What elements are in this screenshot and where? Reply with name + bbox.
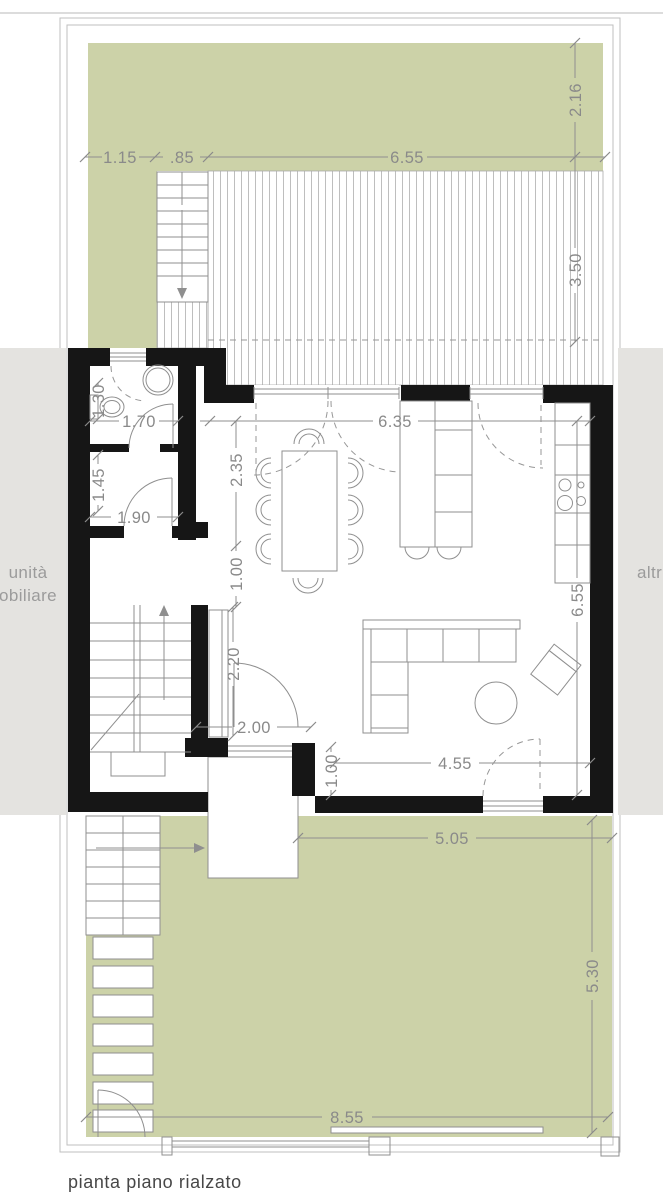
dim-ante-width: 1.90 <box>117 509 151 527</box>
neighbor-label-right: altr <box>637 563 662 582</box>
dim-bath-fixture: 1.30 <box>90 384 108 418</box>
living-window-left <box>254 385 399 403</box>
dim-entry-jamb: 1.00 <box>323 754 341 788</box>
neighbor-label-left-line1: unità <box>9 563 48 582</box>
dim-hall-opening: 1.00 <box>228 557 246 591</box>
dim-garden-top-depth: 2.16 <box>567 83 585 117</box>
rear-door-threshold <box>483 796 543 813</box>
dim-garden-bottom-depth: 5.30 <box>584 959 602 993</box>
entrance-porch <box>208 757 298 878</box>
sliding-gate <box>331 1127 543 1133</box>
kitchen-window <box>470 385 543 403</box>
garden-pavers <box>93 937 153 1132</box>
dim-bath-width: 1.70 <box>122 413 156 431</box>
dim-garden-bottom-front: 5.05 <box>435 830 469 848</box>
dim-garden-bottom-width: 8.55 <box>330 1109 364 1127</box>
neighbor-label-left-line2: obiliare <box>0 586 57 605</box>
external-stairs-top <box>157 172 208 302</box>
floor-plan-page: 1.15 .85 6.55 2.16 3.50 6.35 1.30 1.70 2… <box>0 0 663 1200</box>
kitchen-counter <box>555 403 590 583</box>
dim-garden-top-b: .85 <box>170 149 194 167</box>
plan-caption: pianta piano rialzato <box>68 1172 242 1192</box>
dim-garden-top-a: 1.15 <box>103 149 137 167</box>
garden-bottom <box>86 757 619 1156</box>
floor-plan-drawing: 1.15 .85 6.55 2.16 3.50 6.35 1.30 1.70 2… <box>0 0 663 1200</box>
dim-entry-width: 2.00 <box>237 719 271 737</box>
external-steps-side <box>86 816 160 935</box>
dim-living-width: 6.35 <box>378 413 412 431</box>
dim-wardrobe-length: 2.20 <box>225 647 243 681</box>
dim-ante-depth: 1.45 <box>90 468 108 502</box>
dining-table <box>282 451 337 571</box>
bathroom-window <box>110 348 146 366</box>
dim-living-front: 4.55 <box>438 755 472 773</box>
dim-deck-depth: 3.50 <box>567 253 585 287</box>
deck-stair-strip <box>157 302 208 348</box>
dim-garden-top-c: 6.55 <box>390 149 424 167</box>
dim-hall-depth: 2.35 <box>228 453 246 487</box>
dim-living-depth: 6.55 <box>569 583 587 617</box>
